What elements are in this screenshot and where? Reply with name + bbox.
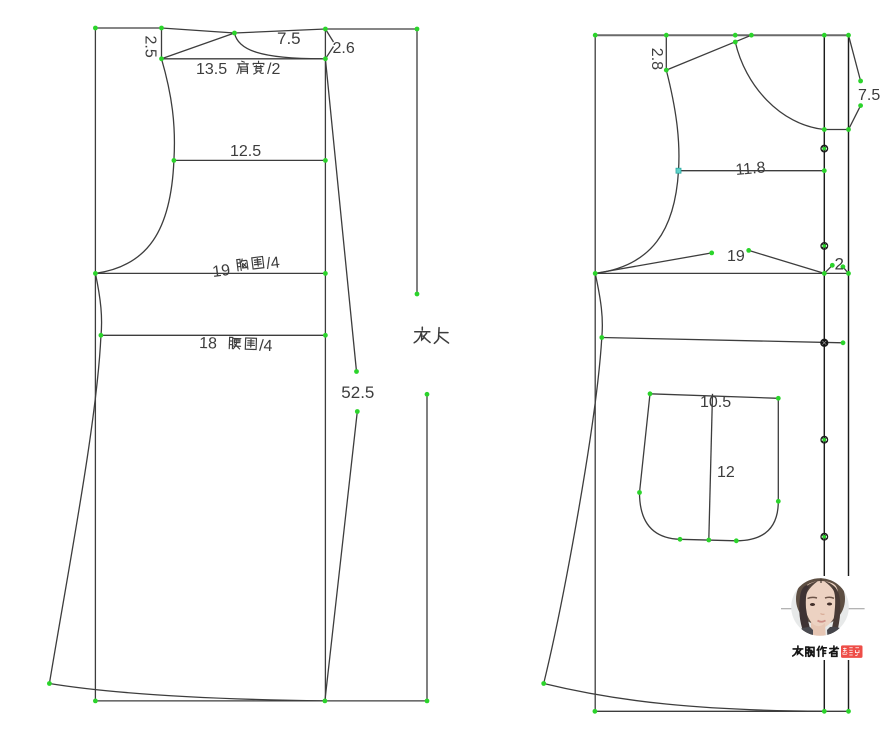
svg-text:2.5: 2.5	[142, 36, 159, 58]
svg-text:2.8: 2.8	[648, 48, 665, 70]
svg-text:2: 2	[835, 255, 844, 274]
svg-text:18: 18	[199, 335, 217, 353]
svg-text:12: 12	[717, 464, 735, 481]
svg-text:10.5: 10.5	[700, 394, 731, 411]
svg-text:7.5: 7.5	[858, 87, 880, 104]
svg-text:/4: /4	[259, 338, 273, 355]
svg-text:19: 19	[211, 262, 231, 281]
svg-text:2.6: 2.6	[333, 40, 355, 57]
svg-text:13.5: 13.5	[196, 61, 227, 78]
svg-text:11.8: 11.8	[735, 159, 766, 179]
svg-text:/4: /4	[265, 254, 280, 273]
svg-text:52.5: 52.5	[341, 383, 374, 402]
svg-text:12.5: 12.5	[230, 143, 261, 160]
svg-text:7.5: 7.5	[277, 29, 301, 48]
svg-text:/2: /2	[267, 61, 280, 78]
svg-text:19: 19	[727, 248, 745, 265]
